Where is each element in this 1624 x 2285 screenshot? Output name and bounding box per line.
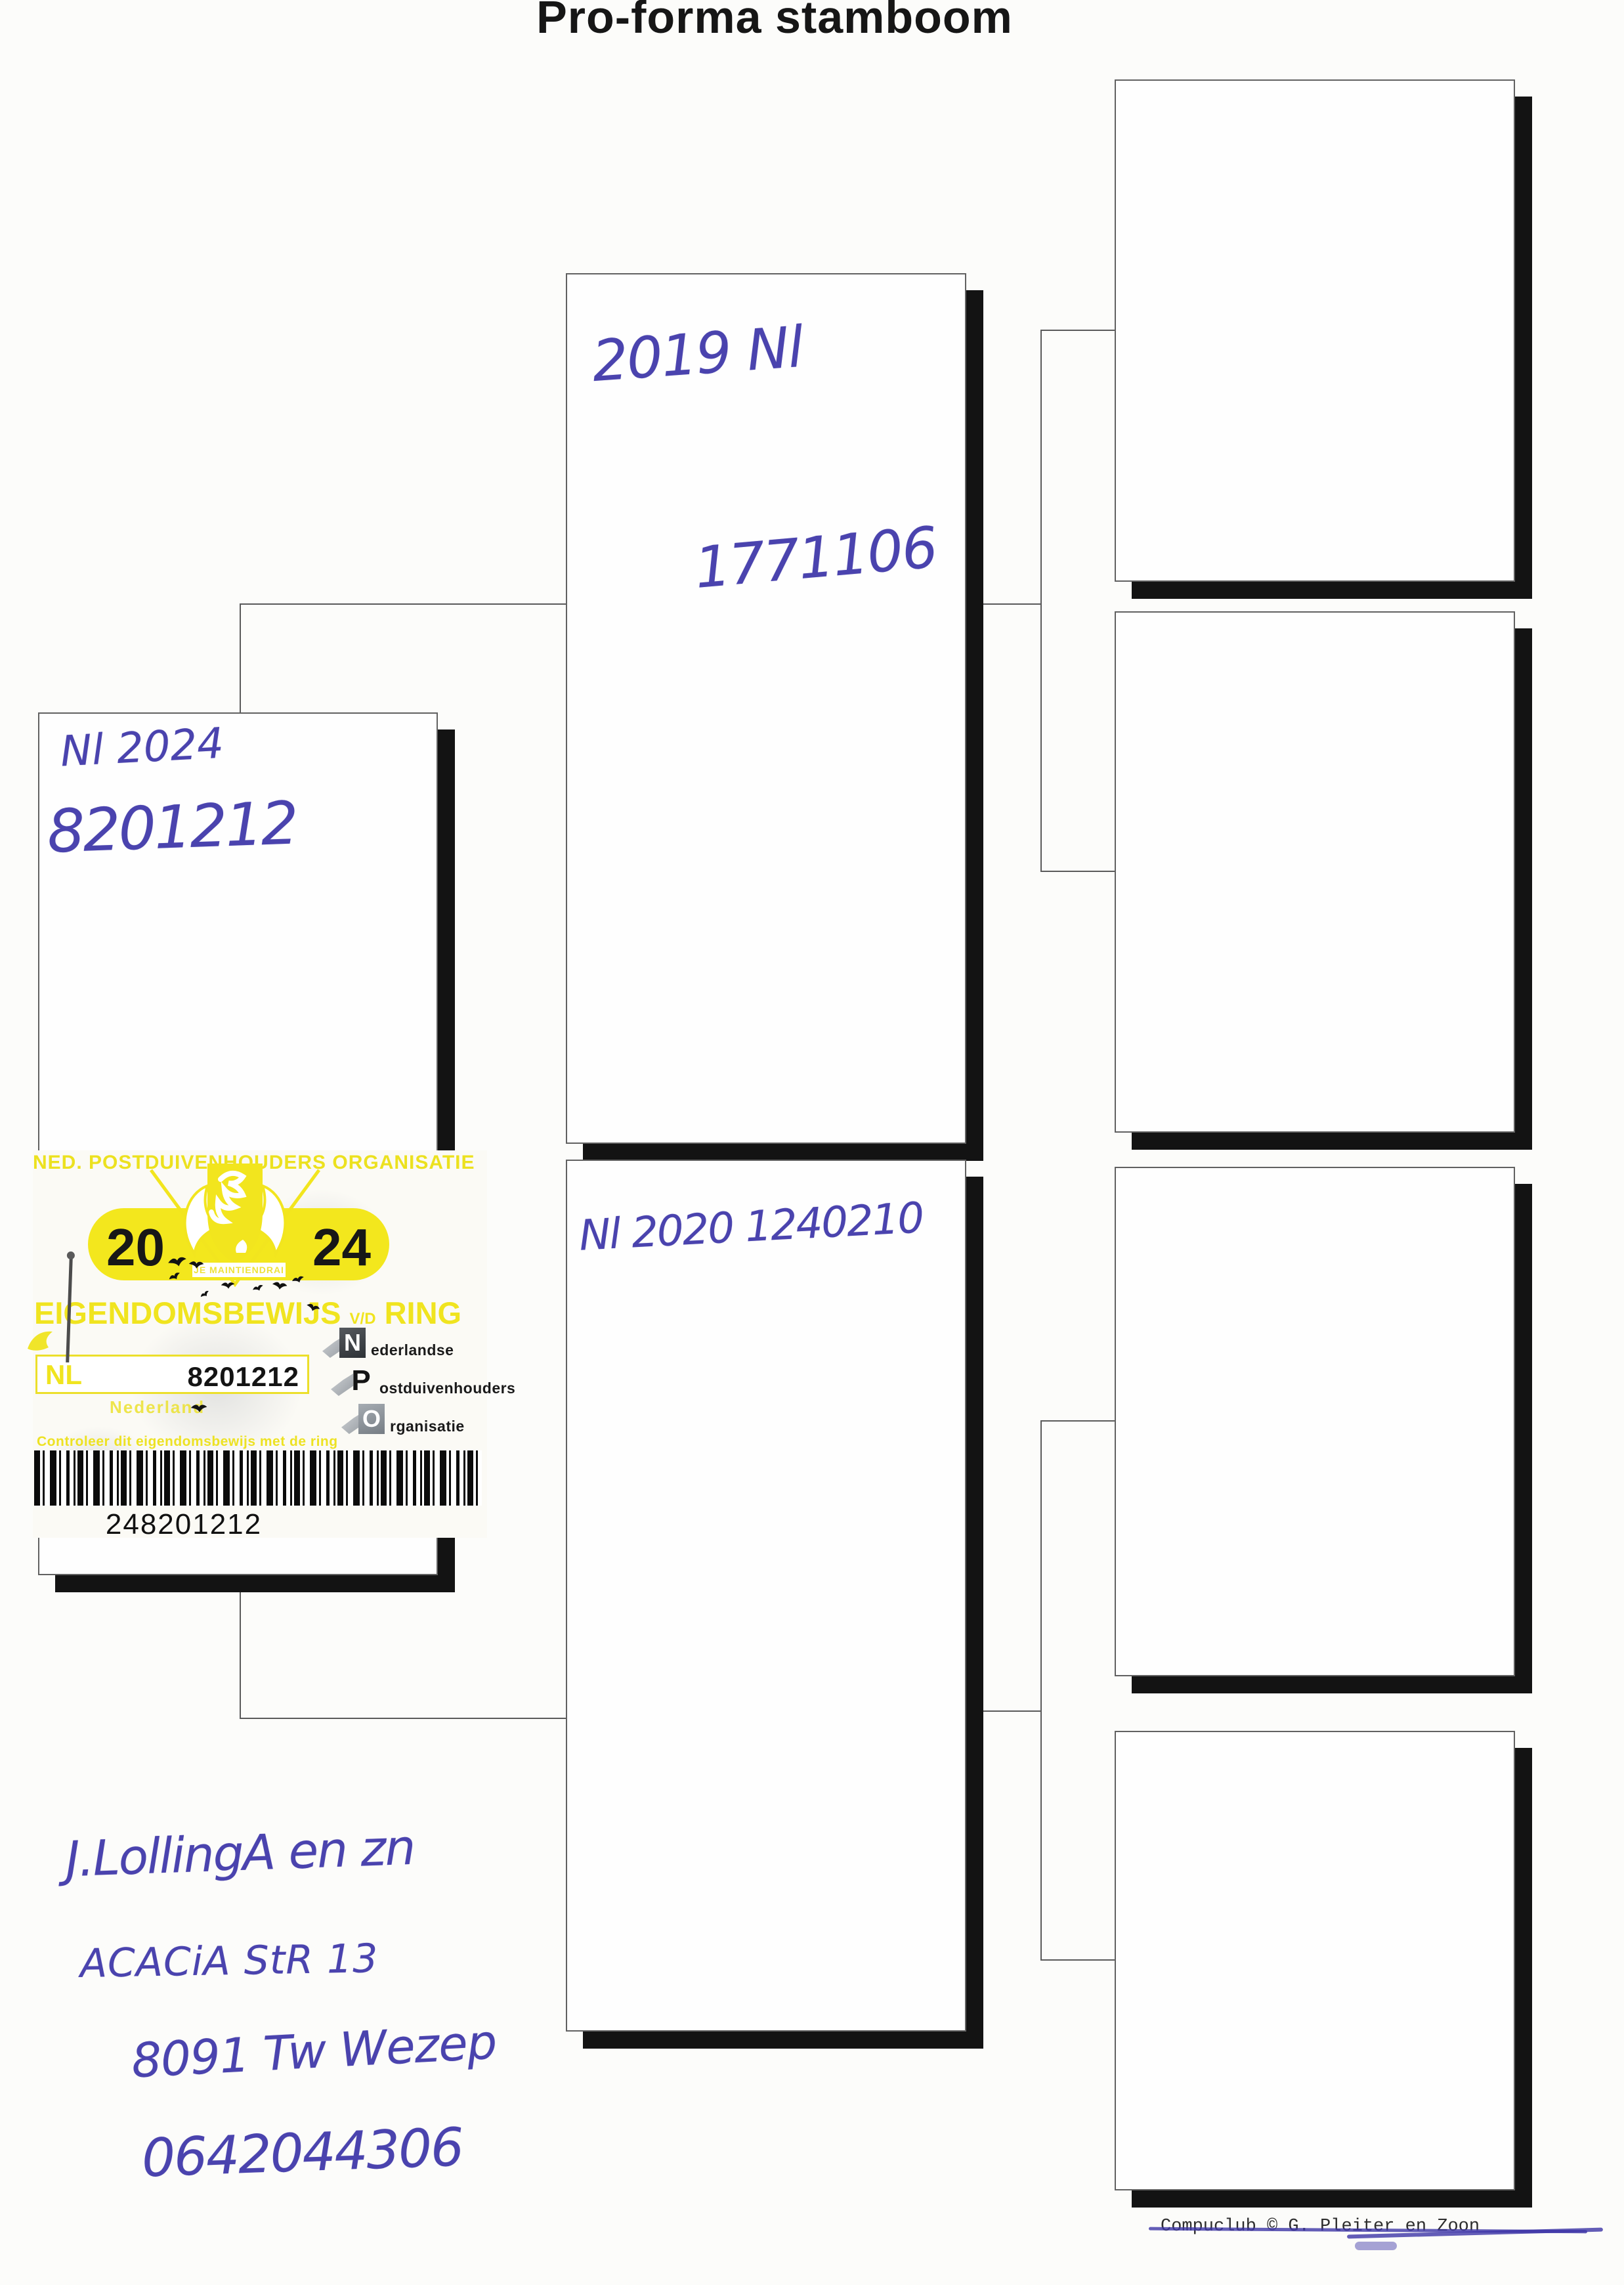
owner-phone: 0642044306 [141,2116,464,2188]
org-label: ostduivenhouders [379,1380,515,1397]
bird-icon [167,1255,187,1267]
pedigree-box-grandparent-4 [1115,1731,1515,2190]
ring-number-printed: 8201212 [187,1361,299,1393]
pen-smudge [1355,2242,1397,2250]
connector-line [1040,871,1116,872]
pedigree-box-sire [566,273,966,1144]
pedigree-box-grandparent-3 [1115,1167,1515,1676]
ring-number-field: NL 8201212 [35,1355,309,1394]
org-initial-tile: P [348,1366,374,1396]
pedigree-box-grandparent-2 [1115,611,1515,1133]
barcode-number: 248201212 [33,1508,335,1541]
doc-title-main: EIGENDOMSBEWIJS [34,1295,341,1330]
bird-icon [220,1280,236,1291]
doc-title-small: V/D [350,1310,376,1328]
country-code: NL [45,1359,82,1391]
check-note: Controleer dit eigendomsbewijs met de ri… [37,1434,338,1450]
connector-line [964,603,1042,605]
lion-shield-icon [207,1164,263,1263]
connector-line [1040,1420,1116,1422]
pedigree-box-dam [566,1160,966,2032]
barcode [34,1450,482,1506]
org-initial-tile: N [339,1328,366,1358]
connector-line [1040,1420,1042,1961]
owner-city: 8091 Tw Wezep [130,2014,498,2089]
org-label: rganisatie [390,1418,465,1435]
pedigree-box-grandparent-1 [1115,79,1515,582]
scanned-pedigree-form: Pro-forma stamboom Nl 2024 8201212 2019 … [0,0,1624,2285]
crest-motto: JE MAINTIENDRAI [192,1263,286,1277]
connector-line [1040,330,1116,331]
connector-line [240,603,567,605]
org-label: ederlandse [371,1341,454,1359]
page-title: Pro-forma stamboom [532,0,1017,43]
ownership-sticker: NED. POSTDUIVENHOUDERS ORGANISATIE 20 24… [33,1150,487,1538]
connector-line [240,1718,567,1719]
org-initial-tile: O [358,1404,385,1434]
handwritten-ring-subject-line2: 8201212 [46,789,297,866]
connector-line [964,1710,1042,1712]
bird-icon [291,1274,305,1284]
handwritten-ring-subject-line1: Nl 2024 [59,720,224,777]
owner-name: J.LollingA en zn [65,1819,416,1888]
owner-street: ACACiA StR 13 [79,1936,379,1987]
sticker-doc-title: EIGENDOMSBEWIJS V/D RING [34,1295,467,1331]
doc-title-end: RING [385,1295,462,1330]
connector-line [1040,330,1042,872]
connector-line [1040,1959,1116,1961]
